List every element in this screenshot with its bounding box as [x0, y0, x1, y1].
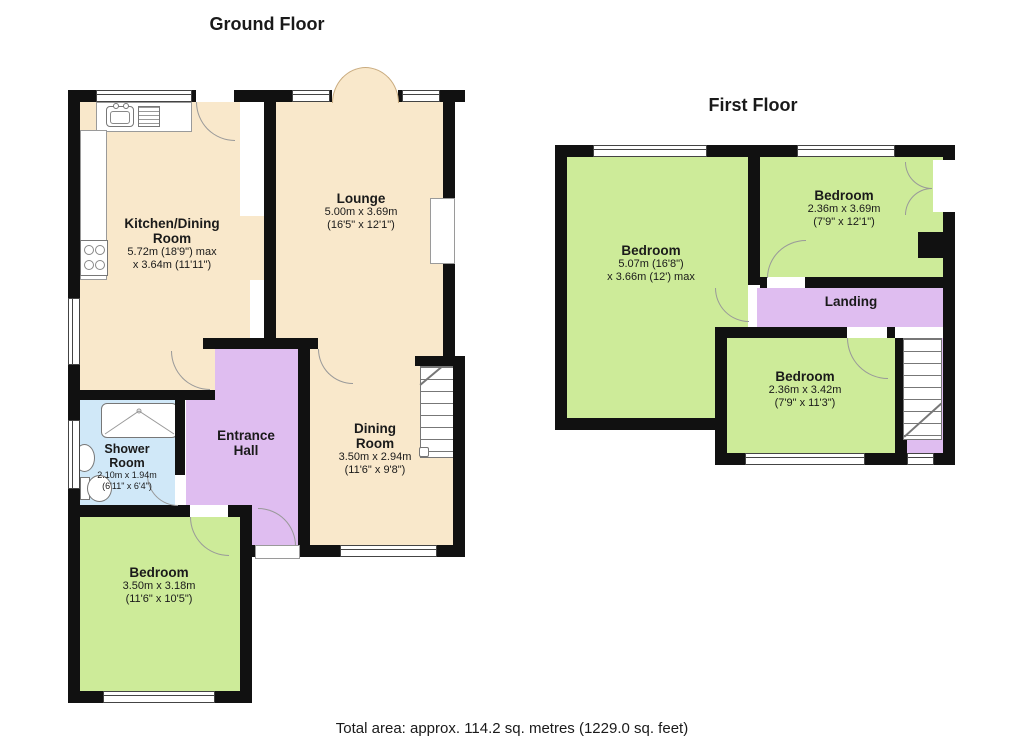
wall — [805, 277, 943, 288]
sink-bowl — [110, 111, 130, 124]
wall — [715, 327, 847, 338]
room-label-first-bedroom-2: Bedroom 2.36m x 3.69m (7'9" x 12'1") — [764, 188, 924, 229]
wall — [68, 90, 80, 298]
window — [68, 298, 80, 365]
kitchen-units-recess — [240, 102, 264, 216]
shower-tray-icon — [101, 403, 178, 438]
front-door-sill — [255, 545, 300, 559]
window — [797, 145, 895, 157]
room-label-shower-room: Shower Room 2.10m x 1.94m (6'11" x 6'4") — [77, 442, 177, 491]
room-label-landing: Landing — [791, 294, 911, 309]
window — [292, 90, 330, 102]
window — [745, 453, 865, 465]
chimney-block — [918, 232, 943, 258]
wall — [555, 145, 567, 430]
french-door-leaf — [365, 67, 399, 103]
kitchen-units-recess — [250, 280, 264, 338]
room-label-kitchen: Kitchen/Dining Room 5.72m (18'9") max x … — [92, 216, 252, 272]
tap-icon — [113, 103, 119, 109]
wall — [68, 505, 190, 517]
wall — [240, 545, 255, 557]
window — [340, 545, 437, 557]
wall — [68, 390, 215, 400]
sink-icon — [106, 106, 134, 127]
tap-icon — [123, 103, 129, 109]
shower-tray-lines — [102, 404, 177, 437]
wall — [228, 505, 252, 517]
room-label-ground-bedroom: Bedroom 3.50m x 3.18m (11'6" x 10'5") — [79, 565, 239, 606]
wall — [932, 453, 955, 465]
room-label-first-bedroom-1: Bedroom 5.07m (16'8") x 3.66m (12') max — [571, 243, 731, 284]
room-label-entrance-hall: Entrance Hall — [196, 428, 296, 458]
balcony-door-recess — [933, 160, 955, 212]
wall — [213, 691, 252, 703]
window — [907, 453, 934, 465]
wall — [264, 90, 276, 349]
ground-floor-title: Ground Floor — [137, 14, 397, 35]
wall — [760, 277, 767, 288]
back-door-opening — [196, 90, 234, 102]
window — [402, 90, 440, 102]
wall — [415, 356, 453, 366]
wall — [68, 691, 103, 703]
entrance-hall-area — [215, 349, 298, 505]
wall — [435, 545, 465, 557]
room-label-lounge: Lounge 5.00m x 3.69m (16'5" x 12'1") — [281, 191, 441, 232]
wall — [555, 418, 715, 430]
room-label-first-bedroom-3: Bedroom 2.36m x 3.42m (7'9" x 11'3") — [725, 369, 885, 410]
french-door-leaf — [332, 67, 366, 103]
wall — [863, 453, 907, 465]
staircase-first — [903, 338, 942, 440]
wall — [234, 90, 292, 102]
floorplan-canvas: Ground Floor First Floor — [0, 0, 1024, 744]
window — [103, 691, 215, 703]
room-label-dining: Dining Room 3.50m x 2.94m (11'6" x 9'8") — [295, 421, 455, 477]
wall — [887, 327, 895, 338]
total-area-note: Total area: approx. 114.2 sq. metres (12… — [212, 720, 812, 737]
first-floor-title: First Floor — [633, 95, 873, 116]
wall — [203, 338, 318, 349]
wall — [748, 145, 760, 285]
window — [593, 145, 707, 157]
drainer-icon — [138, 106, 160, 127]
window — [96, 90, 192, 102]
wall — [310, 545, 340, 557]
